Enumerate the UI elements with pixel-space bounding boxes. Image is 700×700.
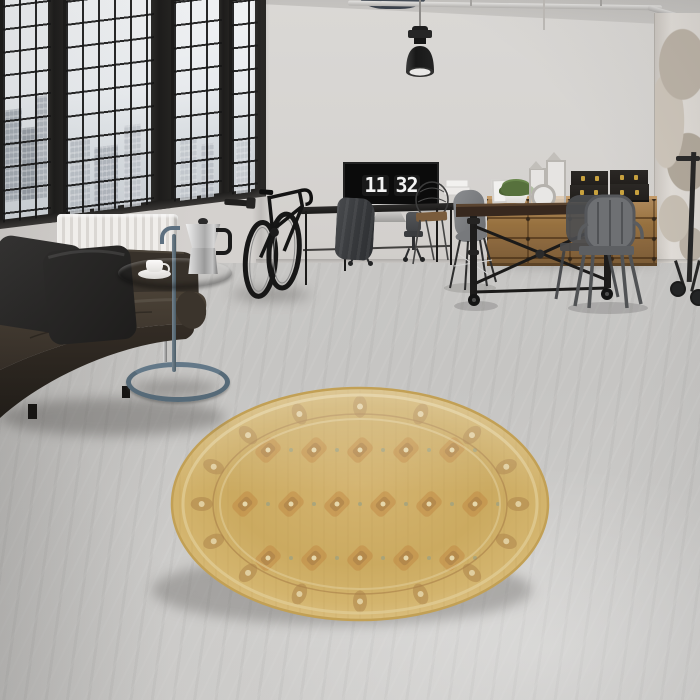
moka-pot-lid	[198, 218, 208, 225]
clock-hours: 11	[364, 173, 386, 197]
city-building	[5, 108, 22, 202]
city-building	[94, 145, 118, 212]
city-building	[22, 127, 35, 201]
factory-window	[171, 0, 225, 205]
stool-back-bar	[676, 156, 700, 161]
moka-pot-handle	[216, 228, 232, 255]
pipe-hanger	[600, 0, 602, 6]
loft-photo: 11 32	[0, 0, 700, 700]
city-building	[35, 95, 47, 198]
moka-pot-base	[188, 248, 218, 274]
pipe-hanger	[470, 0, 472, 6]
coffee-cup	[146, 260, 163, 272]
chair-caster	[348, 261, 353, 266]
city-building	[70, 138, 90, 214]
city-building	[124, 124, 141, 208]
clock-hours-card: 11	[362, 175, 388, 196]
pendant-lamp	[396, 24, 444, 82]
monitor-stand	[372, 212, 406, 222]
wall-mounted-bicycle	[222, 168, 318, 304]
side-table-hook	[160, 226, 180, 244]
conduit-drop	[543, 0, 545, 30]
factory-window	[63, 0, 157, 218]
city-building	[180, 137, 197, 201]
factory-window	[0, 0, 54, 226]
side-table-stem	[172, 234, 176, 372]
round-oriental-rug	[170, 386, 550, 622]
dining-set	[408, 148, 700, 318]
stool-caster	[690, 289, 700, 306]
side-table-base	[126, 362, 230, 402]
window-mullion-pillar	[151, 0, 171, 210]
city-building	[201, 143, 214, 199]
draped-jacket	[334, 197, 375, 261]
stool-caster	[670, 281, 686, 297]
chair-caster	[368, 261, 373, 266]
